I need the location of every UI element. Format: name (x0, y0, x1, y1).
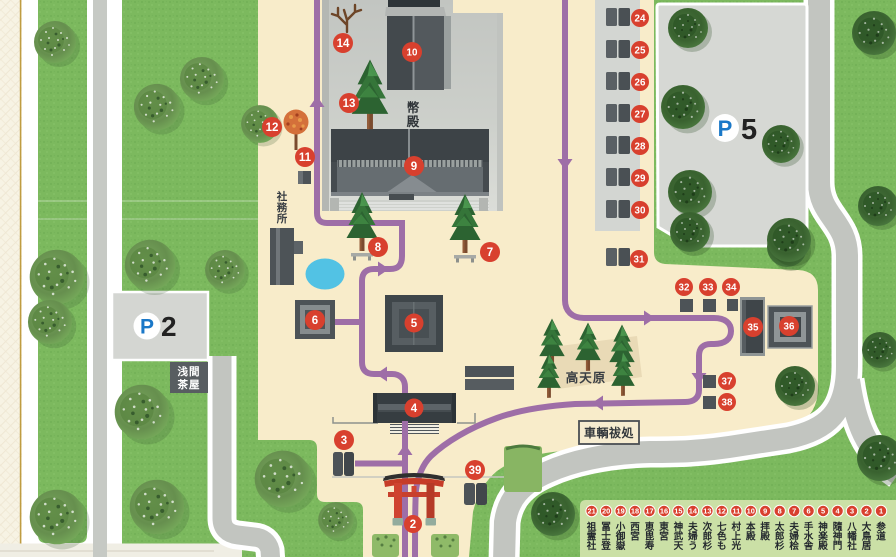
svg-text:P: P (140, 316, 154, 339)
svg-text:隨神門: 隨神門 (833, 521, 843, 552)
svg-text:東宮: 東宮 (659, 521, 669, 543)
svg-text:19: 19 (616, 507, 624, 516)
svg-text:14: 14 (689, 507, 698, 516)
svg-text:太郎杉: 太郎杉 (774, 521, 785, 552)
svg-text:36: 36 (784, 322, 795, 333)
svg-text:12: 12 (266, 122, 279, 134)
svg-text:10: 10 (407, 48, 418, 59)
svg-text:浅間: 浅間 (178, 365, 201, 378)
svg-text:5: 5 (821, 507, 825, 516)
svg-text:所: 所 (277, 212, 288, 225)
svg-text:茶屋: 茶屋 (177, 378, 201, 391)
svg-text:14: 14 (337, 38, 350, 50)
svg-text:大鳥居: 大鳥居 (862, 521, 872, 552)
svg-text:13: 13 (343, 98, 356, 110)
svg-text:30: 30 (635, 206, 646, 217)
svg-text:6: 6 (807, 507, 811, 516)
svg-text:参道: 参道 (876, 521, 886, 543)
svg-text:恵毘寿: 恵毘寿 (645, 521, 655, 552)
svg-text:6: 6 (312, 315, 318, 327)
svg-text:P: P (718, 116, 733, 141)
svg-text:八幡社: 八幡社 (846, 522, 857, 552)
svg-text:20: 20 (602, 507, 610, 516)
svg-text:25: 25 (635, 46, 646, 57)
svg-text:10: 10 (747, 507, 755, 516)
svg-text:13: 13 (703, 507, 711, 516)
svg-text:35: 35 (748, 323, 759, 334)
svg-text:15: 15 (674, 507, 682, 516)
svg-text:21: 21 (587, 507, 595, 516)
svg-text:2: 2 (864, 507, 868, 516)
svg-text:31: 31 (634, 255, 645, 266)
svg-text:5: 5 (741, 114, 757, 146)
svg-text:2: 2 (161, 311, 177, 342)
svg-text:3: 3 (341, 435, 347, 447)
svg-text:24: 24 (635, 14, 646, 25)
svg-text:夫婦う: 夫婦う (687, 521, 698, 552)
svg-text:17: 17 (645, 507, 653, 516)
svg-text:村上光: 村上光 (731, 521, 742, 552)
svg-text:3: 3 (850, 507, 854, 516)
svg-text:夫婦桧: 夫婦桧 (788, 521, 799, 552)
svg-text:32: 32 (679, 283, 690, 294)
svg-text:29: 29 (635, 174, 646, 185)
svg-text:冨士登: 冨士登 (600, 521, 611, 552)
svg-text:4: 4 (411, 403, 418, 415)
svg-text:幣: 幣 (407, 100, 420, 115)
svg-text:七色も: 七色も (717, 521, 727, 552)
svg-text:34: 34 (726, 283, 737, 294)
svg-text:27: 27 (635, 110, 646, 121)
svg-text:本殿: 本殿 (745, 521, 756, 543)
svg-text:26: 26 (635, 78, 646, 89)
svg-text:18: 18 (631, 507, 639, 516)
svg-text:11: 11 (299, 152, 312, 164)
svg-text:7: 7 (792, 507, 796, 516)
svg-text:神武天: 神武天 (674, 521, 684, 552)
svg-text:7: 7 (487, 247, 493, 259)
svg-text:車輌祓処: 車輌祓処 (584, 425, 635, 440)
svg-text:8: 8 (375, 242, 382, 254)
svg-text:11: 11 (732, 507, 740, 516)
svg-text:2: 2 (410, 519, 416, 531)
svg-text:祖霊社: 祖霊社 (586, 521, 597, 552)
svg-text:殿: 殿 (406, 114, 420, 129)
svg-text:12: 12 (718, 507, 726, 516)
svg-text:16: 16 (660, 507, 668, 516)
svg-text:拝殿: 拝殿 (759, 521, 770, 543)
svg-text:28: 28 (635, 142, 646, 153)
svg-text:9: 9 (411, 161, 417, 173)
svg-text:1: 1 (879, 507, 883, 516)
svg-text:9: 9 (763, 507, 767, 516)
svg-text:37: 37 (722, 377, 733, 388)
svg-text:神楽殿: 神楽殿 (817, 521, 828, 552)
svg-text:8: 8 (778, 507, 782, 516)
svg-text:5: 5 (411, 318, 418, 330)
svg-text:高天原: 高天原 (566, 370, 607, 385)
svg-text:手水舎: 手水舎 (803, 521, 814, 552)
svg-text:西宮: 西宮 (630, 522, 640, 543)
svg-text:38: 38 (722, 398, 733, 409)
svg-text:次郎杉: 次郎杉 (703, 521, 713, 552)
svg-text:39: 39 (469, 465, 482, 477)
svg-text:小御嶽: 小御嶽 (615, 521, 626, 552)
svg-text:33: 33 (703, 283, 714, 294)
